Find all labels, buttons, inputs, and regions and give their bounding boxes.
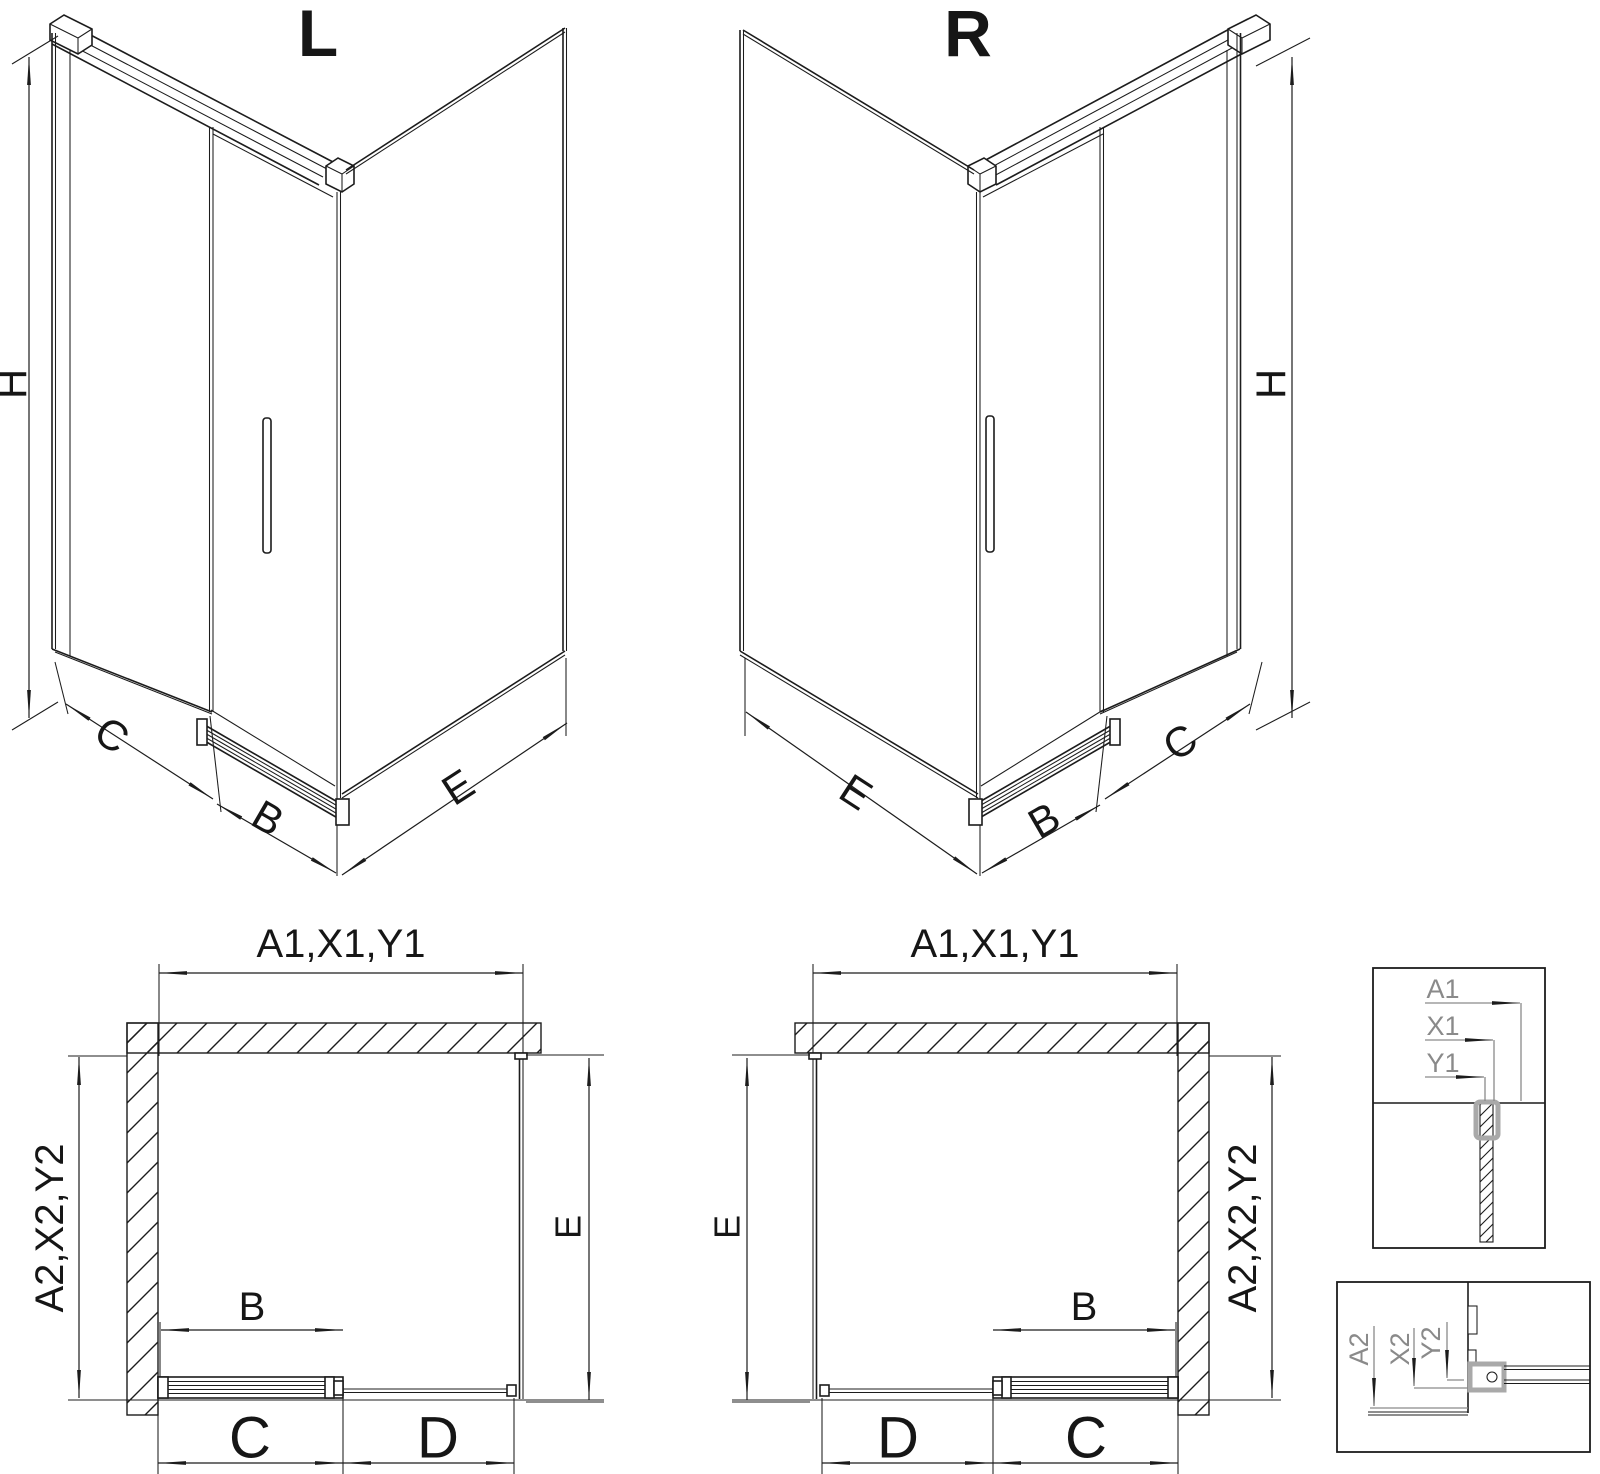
wall-hatch-top-right-plan (795, 1023, 1209, 1053)
detail-top-view: A1 X1 Y1 (1373, 968, 1545, 1248)
corner-block-right (968, 158, 996, 192)
detail-bottom-view: A2 X2 Y2 (1337, 1282, 1590, 1452)
plan-left-view: A1,X1,Y1 A2,X2,Y2 B E C D (28, 922, 604, 1474)
door-handle-right (986, 416, 994, 552)
wall-hatch-side-right-plan (1178, 1023, 1209, 1415)
glass-section-hatch (1480, 1103, 1493, 1242)
detail-a1-label: A1 (1426, 974, 1459, 1004)
iso-left-view: L H C B E (0, 0, 567, 876)
plan-track-right (993, 1377, 1178, 1398)
detail-y1-label: Y1 (1426, 1048, 1459, 1078)
dim-label-e-right: E (831, 765, 880, 820)
roller-wheel (1487, 1372, 1497, 1382)
plan-left-width-label: A1,X1,Y1 (256, 922, 425, 966)
plan-left-d-label: D (417, 1406, 459, 1471)
view-title-right: R (944, 0, 992, 70)
plan-right-b-label: B (1071, 1285, 1098, 1329)
detail-x1-label: X1 (1426, 1011, 1459, 1041)
detail-a2-label: A2 (1344, 1332, 1374, 1365)
detail-y2-label: Y2 (1416, 1326, 1446, 1359)
wall-bracket-left (50, 15, 92, 54)
wall-hatch-top-left-plan (127, 1023, 541, 1053)
plan-left-b-label: B (239, 1285, 266, 1329)
dim-label-e-left: E (433, 760, 482, 815)
dim-label-c-left: C (86, 707, 137, 763)
plan-track-left (158, 1377, 343, 1398)
drawing-canvas: L H C B E (0, 0, 1600, 1474)
detail-x2-label: X2 (1385, 1332, 1415, 1365)
corner-block-left (326, 158, 354, 192)
plan-right-width-label: A1,X1,Y1 (910, 922, 1079, 966)
plan-left-c-label: C (229, 1406, 271, 1471)
plan-right-view: A1,X1,Y1 E A2,X2,Y2 B D C (707, 922, 1282, 1474)
iso-right-view: R H E B C (740, 0, 1310, 876)
wall-hatch-side-left-plan (127, 1023, 158, 1415)
plan-right-depth-label: A2,X2,Y2 (1221, 1143, 1265, 1312)
plan-right-c-label: C (1065, 1406, 1107, 1471)
technical-drawing-page: L H C B E (0, 0, 1600, 1474)
dim-label-b-right: B (1020, 793, 1068, 848)
dim-label-b-left: B (244, 791, 292, 846)
dim-label-h-right: H (1248, 369, 1295, 399)
dim-label-h-left: H (0, 369, 36, 399)
plan-right-e-label: E (707, 1215, 748, 1239)
door-handle-left (263, 418, 271, 553)
wall-bracket-right (1228, 15, 1270, 54)
view-title-left: L (298, 0, 338, 70)
plan-left-e-label: E (548, 1215, 589, 1239)
plan-right-d-label: D (877, 1406, 919, 1471)
plan-left-depth-label: A2,X2,Y2 (28, 1143, 72, 1312)
